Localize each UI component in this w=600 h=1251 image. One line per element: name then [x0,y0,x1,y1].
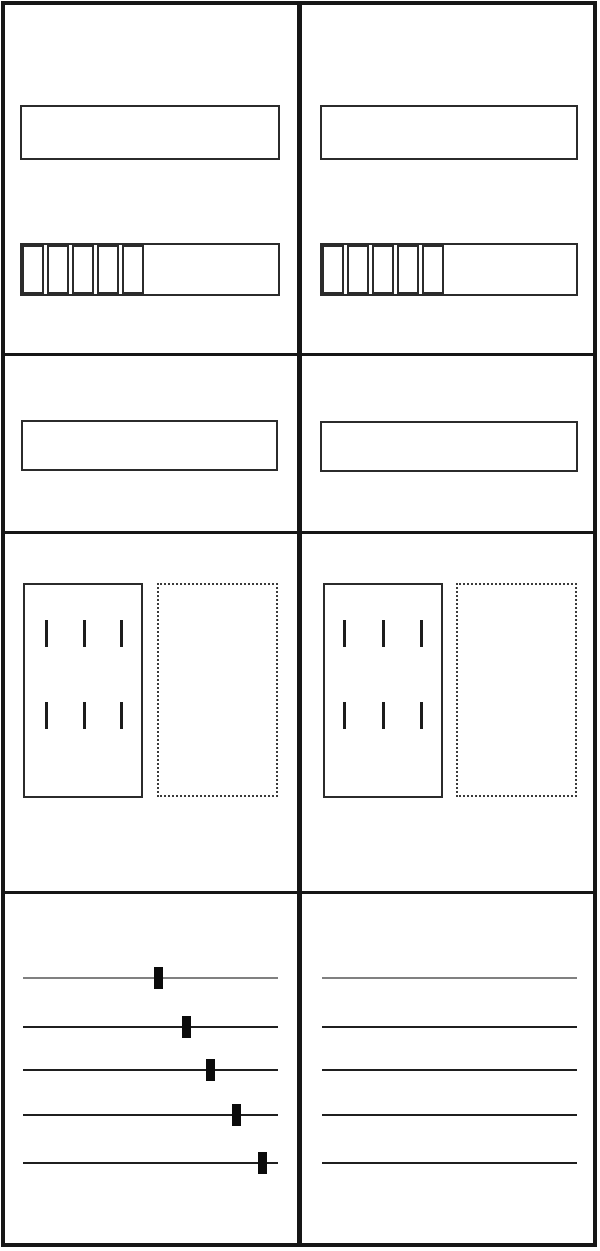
section-divider-2 [1,531,597,534]
meter-contact-tick [83,620,86,647]
meter-contact-tick [120,702,123,729]
busbar-line [322,1114,577,1116]
meter-cabinet-diagram [0,0,600,1251]
strip-cell [97,245,119,294]
meter-contact-tick [420,620,423,647]
blank-panel-mid-right [320,421,578,472]
terminal-strip-left [20,243,280,296]
meter-contact-tick [83,702,86,729]
meter-contact-tick [382,620,385,647]
busbar-tap-block [182,1016,191,1038]
meter-contact-tick [343,702,346,729]
busbar-line [23,1069,278,1071]
meter-contact-tick [120,620,123,647]
meter-contact-tick [420,702,423,729]
reserve-area-left [157,583,278,797]
busbar-tap-block [154,967,163,989]
blank-panel-top-right [320,105,578,160]
busbar-tap-block [232,1104,241,1126]
blank-panel-top-left [20,105,280,160]
strip-cell [72,245,94,294]
meter-contact-tick [343,620,346,647]
meter-panel-left [23,583,143,798]
busbar-line [23,977,278,979]
terminal-strip-right [320,243,578,296]
strip-cell [47,245,69,294]
reserve-area-right [456,583,577,797]
blank-panel-mid-left [21,420,278,471]
strip-cell [322,245,344,294]
busbar-line [23,1026,278,1028]
busbar-line [322,1162,577,1164]
busbar-tap-block [258,1152,267,1174]
meter-contact-tick [45,702,48,729]
busbar-line [322,1026,577,1028]
section-divider-1 [1,353,597,356]
busbar-tap-block [206,1059,215,1081]
busbar-line [322,977,577,979]
strip-cell [372,245,394,294]
strip-cell [347,245,369,294]
meter-panel-right [323,583,443,798]
strip-cell [422,245,444,294]
meter-contact-tick [45,620,48,647]
busbar-line [23,1162,278,1164]
strip-cell [397,245,419,294]
section-divider-3 [1,891,597,894]
busbar-line [322,1069,577,1071]
field-divider [297,1,302,1247]
strip-cell [22,245,44,294]
strip-cell [122,245,144,294]
meter-contact-tick [382,702,385,729]
